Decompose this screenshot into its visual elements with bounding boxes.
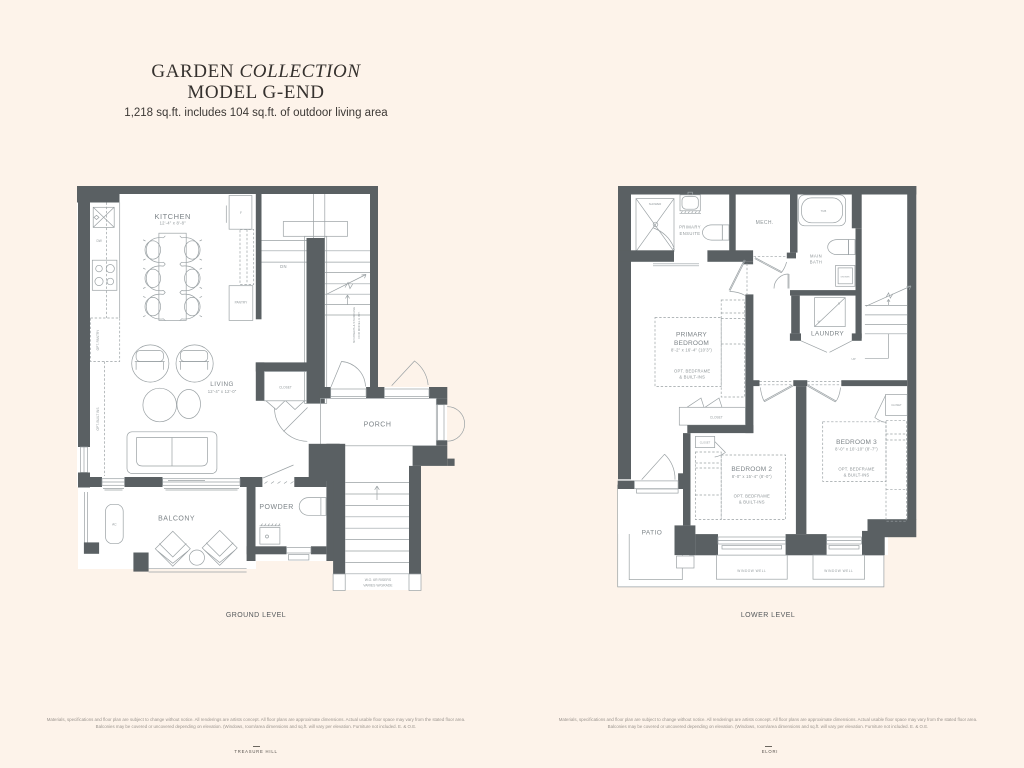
svg-text:WINDOW WELL: WINDOW WELL — [824, 569, 853, 573]
svg-text:8'-0" x 15'-4" (8'-0"): 8'-0" x 15'-4" (8'-0") — [732, 474, 773, 479]
svg-text:SHOWER: SHOWER — [649, 202, 662, 206]
svg-text:LIVING: LIVING — [210, 381, 234, 388]
svg-text:SHOWER: SHOWER — [841, 277, 851, 279]
svg-text:PANTRY: PANTRY — [235, 301, 249, 305]
svg-text:MECH.: MECH. — [756, 220, 774, 226]
svg-text:BEDROOM: BEDROOM — [674, 340, 709, 347]
svg-text:PORCH: PORCH — [364, 422, 392, 429]
svg-text:CLOSET: CLOSET — [710, 416, 723, 420]
svg-text:BEDROOM 2: BEDROOM 2 — [731, 466, 772, 473]
svg-text:DN: DN — [280, 264, 287, 269]
svg-text:DW: DW — [97, 239, 102, 243]
svg-text:VARIES W/GRADE: VARIES W/GRADE — [363, 584, 393, 588]
svg-text:CLOSET: CLOSET — [700, 441, 711, 445]
svg-text:6R RISERS & STAIRCASE: 6R RISERS & STAIRCASE — [352, 307, 356, 343]
svg-text:BALCONY: BALCONY — [158, 516, 195, 523]
svg-text:CLOSET: CLOSET — [891, 403, 902, 407]
svg-text:OPT. BEDFRAME: OPT. BEDFRAME — [838, 467, 874, 472]
svg-text:UP: UP — [852, 357, 856, 361]
svg-text:12'-4" x 8'-8": 12'-4" x 8'-8" — [160, 221, 187, 226]
svg-text:OPT. BUILT INS: OPT. BUILT INS — [96, 408, 100, 431]
svg-text:12'-4" x 12'-0": 12'-4" x 12'-0" — [208, 389, 237, 394]
svg-text:F: F — [240, 211, 242, 215]
svg-text:PRIMARY: PRIMARY — [676, 332, 707, 339]
svg-text:AC: AC — [112, 523, 117, 527]
svg-text:PRIMARY: PRIMARY — [679, 225, 701, 230]
svg-text:FOR MODEL U INT.: FOR MODEL U INT. — [357, 311, 361, 338]
svg-text:& BUILT-INS: & BUILT-INS — [844, 473, 870, 478]
svg-text:MAIN: MAIN — [810, 254, 822, 259]
svg-text:TUB: TUB — [821, 209, 827, 213]
svg-text:OPT. PANTRY: OPT. PANTRY — [96, 329, 100, 350]
svg-text:POWDER: POWDER — [259, 504, 294, 511]
svg-text:& BUILT-INS: & BUILT-INS — [739, 500, 765, 505]
svg-text:W.O. 6R RISERS: W.O. 6R RISERS — [365, 578, 392, 582]
svg-text:W: W — [818, 320, 821, 324]
svg-text:OPT. BEDFRAME: OPT. BEDFRAME — [674, 369, 710, 374]
svg-text:OPT. BEDFRAME: OPT. BEDFRAME — [734, 494, 770, 499]
svg-text:8'-0" x 10'-10" (8'-7"): 8'-0" x 10'-10" (8'-7") — [835, 447, 878, 452]
svg-text:CLOSET: CLOSET — [279, 386, 292, 390]
svg-text:WINDOW WELL: WINDOW WELL — [737, 569, 766, 573]
svg-text:& BUILT-INS: & BUILT-INS — [679, 375, 705, 380]
svg-text:BATH: BATH — [810, 260, 822, 265]
svg-text:LAUNDRY: LAUNDRY — [811, 331, 844, 338]
svg-text:PATIO: PATIO — [642, 530, 663, 537]
svg-text:8'-2" x 16'-4" (10'3"): 8'-2" x 16'-4" (10'3") — [671, 348, 712, 353]
svg-text:BEDROOM 3: BEDROOM 3 — [836, 439, 877, 446]
svg-text:ENSUITE: ENSUITE — [680, 231, 701, 236]
